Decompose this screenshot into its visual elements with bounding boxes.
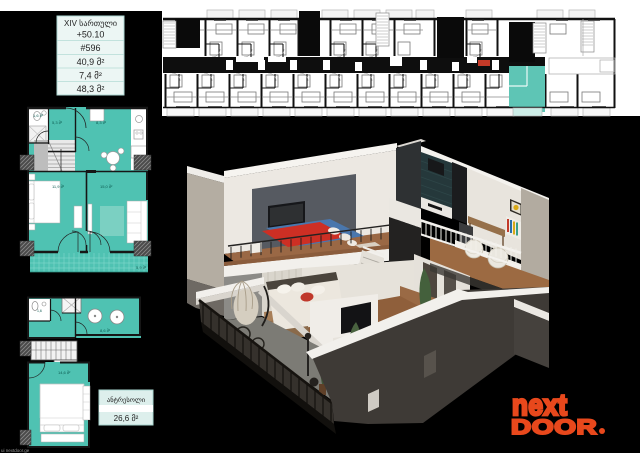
svg-text:15,0 მ²: 15,0 მ² xyxy=(100,184,113,189)
svg-text:8,3 მ²: 8,3 მ² xyxy=(96,120,107,125)
svg-text:14,6 მ²: 14,6 მ² xyxy=(58,370,71,375)
svg-text:XIV სართული: XIV სართული xyxy=(64,19,117,28)
svg-text:8,6 მ²: 8,6 მ² xyxy=(100,328,111,333)
svg-text:1,6: 1,6 xyxy=(37,309,42,313)
svg-text:ანტრესოლი: ანტრესოლი xyxy=(107,396,146,404)
svg-text:48,3 მ²: 48,3 მ² xyxy=(77,84,105,94)
svg-text:1,6 მ²: 1,6 მ² xyxy=(33,113,44,118)
svg-text:5,3 მ²: 5,3 მ² xyxy=(52,120,63,125)
svg-text:#596: #596 xyxy=(80,43,100,53)
svg-text:26,6 მ²: 26,6 მ² xyxy=(114,414,139,423)
svg-text:ui nextdoor.ge: ui nextdoor.ge xyxy=(1,448,30,453)
svg-text:40,9 მ²: 40,9 მ² xyxy=(77,57,105,67)
svg-text:+50.10: +50.10 xyxy=(77,30,105,40)
svg-text:11,9 მ²: 11,9 მ² xyxy=(52,184,65,189)
svg-text:5,9 მ²: 5,9 მ² xyxy=(136,265,147,270)
svg-text:DOOR: DOOR xyxy=(511,416,597,439)
svg-text:7,4 მ²: 7,4 მ² xyxy=(79,71,102,81)
